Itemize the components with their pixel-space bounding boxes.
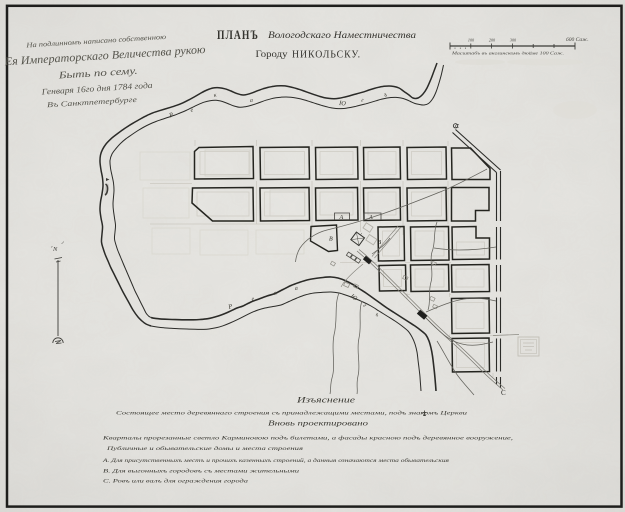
svg-text:С. Ровъ или валъ для ограждени: С. Ровъ или валъ для ограждения города [103,478,248,485]
svg-text:Кварталы прорезанные светло Ка: Кварталы прорезанные светло Карминовою п… [101,435,514,442]
svg-text:А. Для присутственныхъ местъ и: А. Для присутственныхъ местъ и прочихъ к… [102,457,450,464]
svg-text:C: C [501,389,506,397]
svg-text:200: 200 [489,38,496,43]
svg-text:Масштабъ въ англинскомъ дюйме: Масштабъ въ англинскомъ дюйме 100 Саж. [451,51,564,56]
svg-text:В: В [378,240,382,246]
svg-text:а: а [250,98,254,104]
svg-text:НИКОЛЬСКУ.: НИКОЛЬСКУ. [292,50,361,61]
svg-text:N: N [52,246,58,253]
svg-text:600 Саж.: 600 Саж. [566,37,589,43]
svg-text:ъ: ъ [384,93,387,99]
svg-text:Ю: Ю [338,100,346,108]
svg-text:100: 100 [468,38,475,43]
svg-text:А: А [339,215,344,221]
svg-text:Состоящее место деревяннаго ст: Состоящее место деревяннаго строения съ … [116,410,467,417]
svg-text:Публичные и обывательские домы: Публичные и обывательские домы и места с… [105,445,303,452]
svg-text:Городу: Городу [256,49,289,59]
svg-text:В. Для выгонныхъ городовъ съ м: В. Для выгонныхъ городовъ съ местами жит… [103,468,299,475]
svg-text:ПЛАНЪ: ПЛАНЪ [217,27,259,42]
svg-text:В: В [329,237,333,243]
svg-text:Вологодскаго Наместничества: Вологодскаго Наместничества [268,30,416,41]
svg-text:Вновь проектировано: Вновь проектировано [268,419,368,428]
svg-text:Изъяснение: Изъяснение [296,395,355,405]
svg-text:300: 300 [510,38,517,43]
